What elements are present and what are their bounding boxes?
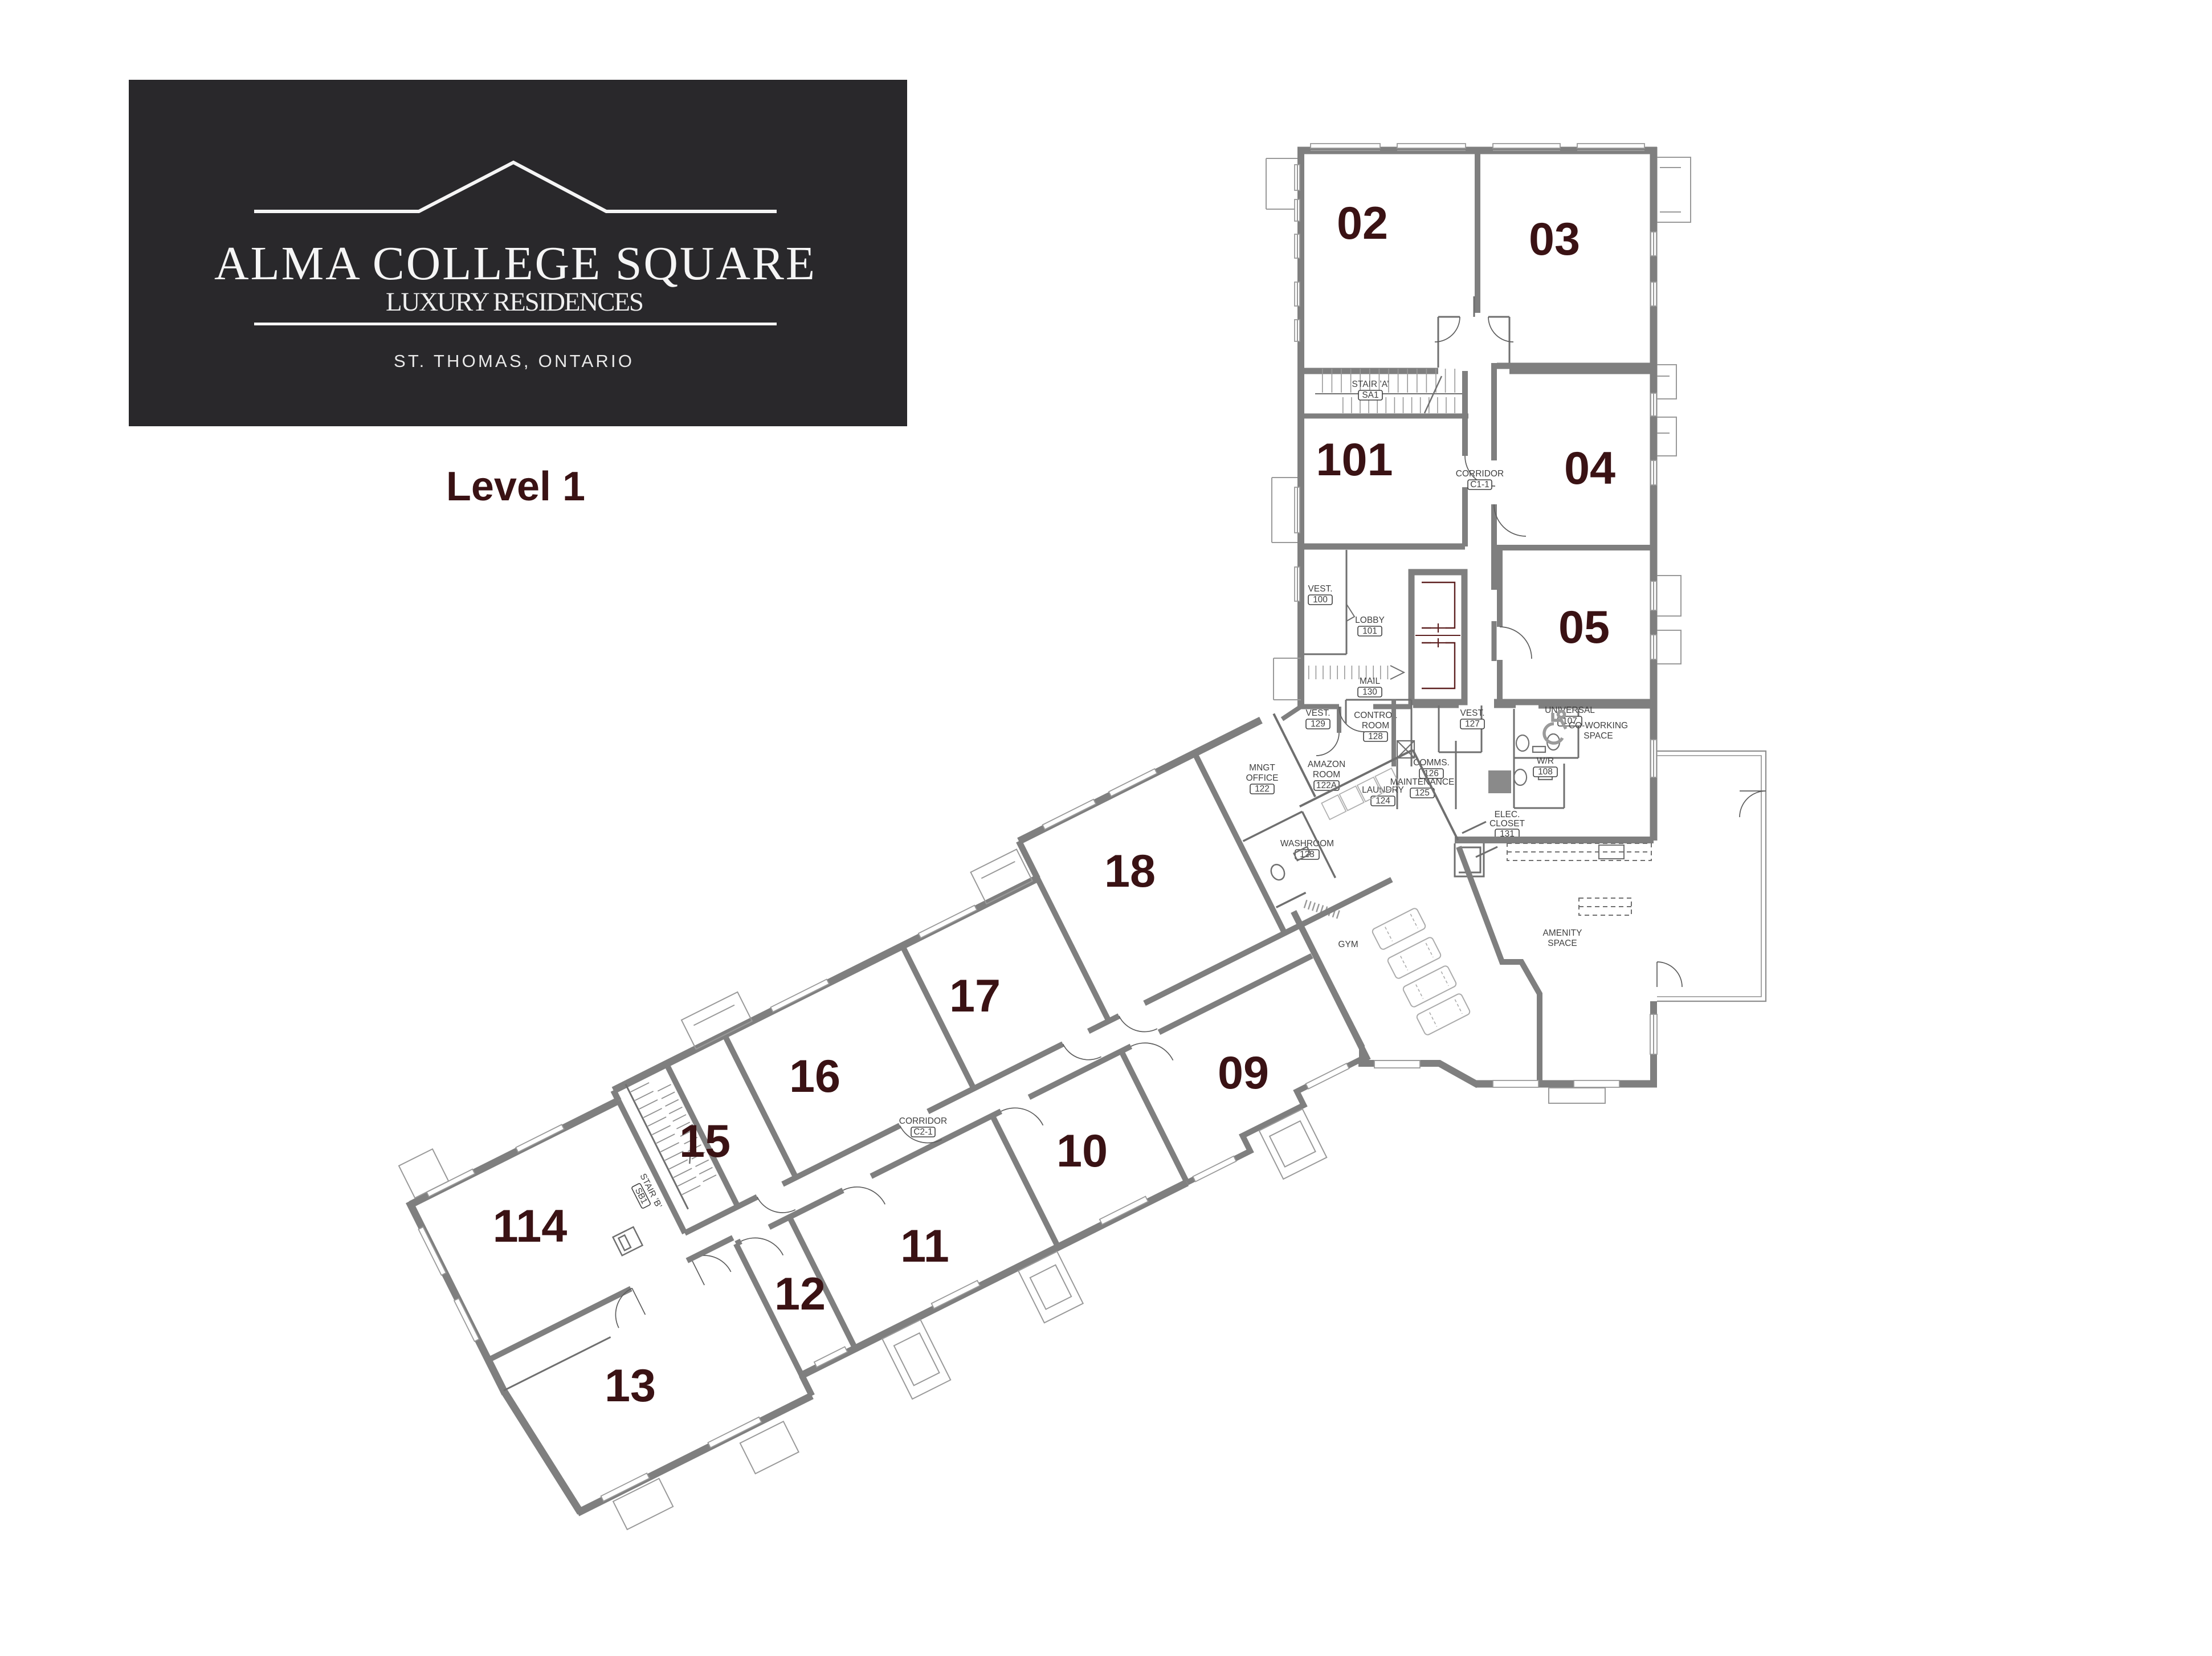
svg-text:124: 124 [1376, 796, 1390, 806]
svg-text:16: 16 [789, 1051, 840, 1102]
svg-text:ROOM: ROOM [1362, 721, 1389, 731]
svg-text:ALMA COLLEGE SQUARE: ALMA COLLEGE SQUARE [214, 237, 817, 290]
svg-text:VEST.: VEST. [1460, 708, 1484, 718]
svg-text:Level 1: Level 1 [446, 464, 585, 509]
svg-text:114: 114 [493, 1201, 568, 1252]
svg-text:127: 127 [1465, 719, 1480, 729]
svg-text:ROOM: ROOM [1313, 770, 1340, 780]
svg-text:101: 101 [1362, 626, 1377, 636]
svg-text:CORRIDOR: CORRIDOR [899, 1116, 947, 1126]
svg-text:STAIR ’A’: STAIR ’A’ [1352, 380, 1389, 389]
svg-text:18: 18 [1104, 846, 1156, 897]
svg-text:17: 17 [949, 970, 1001, 1022]
svg-text:125: 125 [1415, 788, 1430, 798]
svg-text:LAUNDRY: LAUNDRY [1362, 785, 1404, 795]
svg-text:100: 100 [1313, 595, 1328, 605]
svg-text:10: 10 [1056, 1125, 1108, 1177]
svg-text:LOBBY: LOBBY [1355, 615, 1385, 625]
svg-text:OFFICE: OFFICE [1246, 773, 1279, 783]
svg-text:MNGT: MNGT [1249, 763, 1275, 773]
svg-text:C2-1: C2-1 [913, 1127, 933, 1137]
svg-text:LUXURY RESIDENCES: LUXURY RESIDENCES [386, 287, 646, 317]
svg-text:SPACE: SPACE [1584, 731, 1613, 741]
svg-text:05: 05 [1558, 602, 1610, 653]
svg-text:SPACE: SPACE [1548, 939, 1577, 948]
svg-text:12: 12 [774, 1268, 826, 1320]
svg-text:101: 101 [1316, 434, 1393, 486]
svg-text:CORRIDOR: CORRIDOR [1456, 469, 1504, 479]
svg-text:VEST.: VEST. [1305, 708, 1330, 718]
svg-text:CONTROL: CONTROL [1354, 711, 1397, 720]
svg-text:ST. THOMAS, ONTARIO: ST. THOMAS, ONTARIO [394, 351, 635, 371]
svg-text:VEST.: VEST. [1308, 584, 1332, 594]
svg-text:AMAZON: AMAZON [1308, 760, 1345, 769]
svg-text:ELEC.: ELEC. [1495, 810, 1520, 819]
svg-text:130: 130 [1362, 687, 1377, 697]
svg-text:122: 122 [1255, 784, 1270, 794]
svg-text:GYM: GYM [1338, 940, 1358, 949]
svg-text:CO-WORKING: CO-WORKING [1569, 721, 1628, 731]
svg-text:13: 13 [605, 1360, 656, 1412]
svg-text:108: 108 [1538, 767, 1553, 777]
svg-text:11: 11 [900, 1221, 949, 1272]
svg-text:CLOSET: CLOSET [1489, 819, 1525, 829]
svg-text:04: 04 [1564, 443, 1615, 494]
svg-text:W/R: W/R [1537, 756, 1554, 766]
svg-text:C1-1: C1-1 [1470, 480, 1489, 490]
svg-text:02: 02 [1337, 198, 1388, 249]
svg-text:03: 03 [1529, 214, 1580, 265]
svg-text:09: 09 [1218, 1047, 1269, 1099]
svg-text:AMENITY: AMENITY [1543, 928, 1582, 938]
svg-text:129: 129 [1311, 719, 1325, 729]
svg-text:128: 128 [1368, 732, 1383, 741]
svg-text:15: 15 [679, 1116, 730, 1167]
svg-text:MAIL: MAIL [1360, 676, 1381, 686]
svg-text:SA1: SA1 [1362, 390, 1378, 400]
